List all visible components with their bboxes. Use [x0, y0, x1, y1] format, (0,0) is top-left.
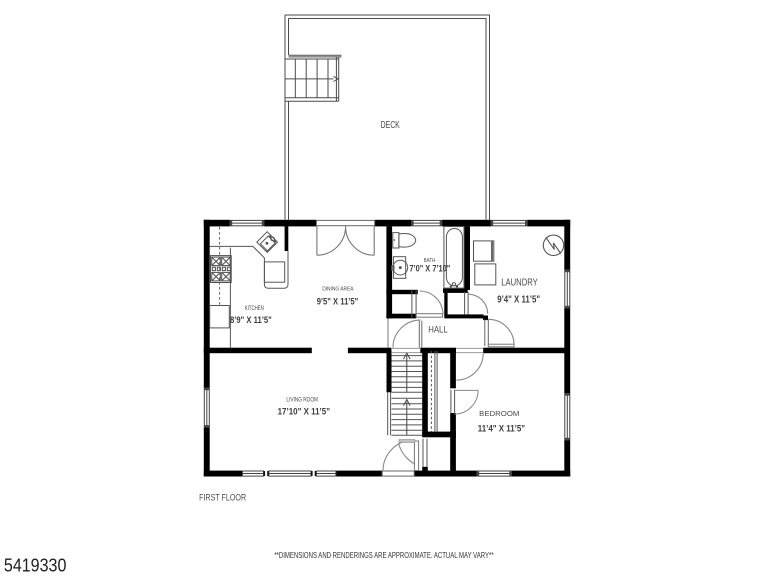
svg-text:LIVING ROOM: LIVING ROOM	[286, 398, 318, 404]
svg-text:KITCHEN: KITCHEN	[245, 305, 264, 312]
svg-text:9’5" X 11’5": 9’5" X 11’5"	[317, 296, 359, 307]
svg-text:7’0" X 7’10": 7’0" X 7’10"	[409, 264, 450, 275]
svg-text:LAUNDRY: LAUNDRY	[501, 278, 538, 289]
svg-text:11’4" X 11’5": 11’4" X 11’5"	[478, 423, 525, 434]
svg-text:HALL: HALL	[428, 324, 448, 334]
svg-text:8’9" X 11’5": 8’9" X 11’5"	[230, 315, 272, 326]
svg-text:DECK: DECK	[381, 120, 401, 131]
svg-text:**DIMENSIONS AND RENDERINGS AR: **DIMENSIONS AND RENDERINGS ARE APPROXIM…	[274, 551, 494, 560]
svg-text:FIRST FLOOR: FIRST FLOOR	[199, 493, 246, 504]
svg-text:DINING AREA: DINING AREA	[322, 286, 353, 292]
svg-text:5419330: 5419330	[4, 555, 67, 576]
svg-text:9’4" X 11’5": 9’4" X 11’5"	[497, 294, 540, 305]
svg-text:17’10" X 11’5": 17’10" X 11’5"	[278, 406, 330, 416]
svg-text:BEDROOM: BEDROOM	[479, 409, 519, 418]
